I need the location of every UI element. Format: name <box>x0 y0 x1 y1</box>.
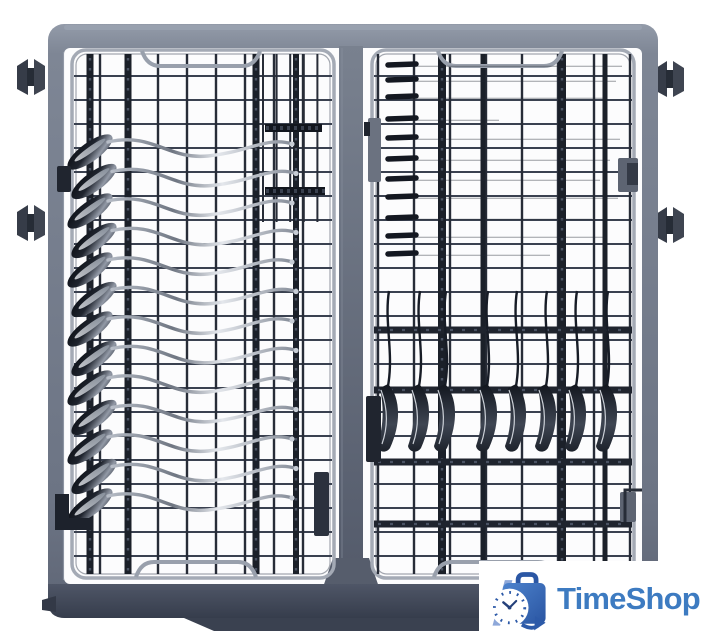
knife <box>388 196 624 198</box>
knife <box>388 137 626 139</box>
timeshop-logo-icon <box>484 567 556 635</box>
product-photo: TimeShop <box>0 0 702 640</box>
cutlery-rack-illustration <box>0 0 702 640</box>
timeshop-brand-text: TimeShop <box>557 583 700 614</box>
rack-roller <box>17 59 45 95</box>
right-tray-left-clip <box>364 122 370 136</box>
left-tray-right-tab <box>314 472 329 536</box>
knife <box>388 178 606 180</box>
clock-center-dot <box>508 605 512 609</box>
rack-roller <box>656 61 684 97</box>
knife <box>388 64 628 66</box>
rack-roller <box>17 205 45 241</box>
left-edge-clip <box>57 166 71 192</box>
frame-left-foot <box>42 596 56 612</box>
right-tray-left-tab-lower <box>366 396 381 462</box>
knife <box>388 79 622 81</box>
knife <box>388 96 612 98</box>
knife <box>388 253 556 255</box>
knife <box>388 158 616 160</box>
knife <box>388 235 612 237</box>
right-tray-bracket-lower <box>620 492 636 522</box>
timeshop-watermark: TimeShop <box>479 561 702 640</box>
rack-roller <box>656 207 684 243</box>
center-rail <box>339 46 363 592</box>
frame-top-highlight <box>64 25 642 30</box>
knife <box>388 118 505 120</box>
knife <box>388 217 598 219</box>
right-tray-bracket-upper-inner <box>627 163 638 185</box>
